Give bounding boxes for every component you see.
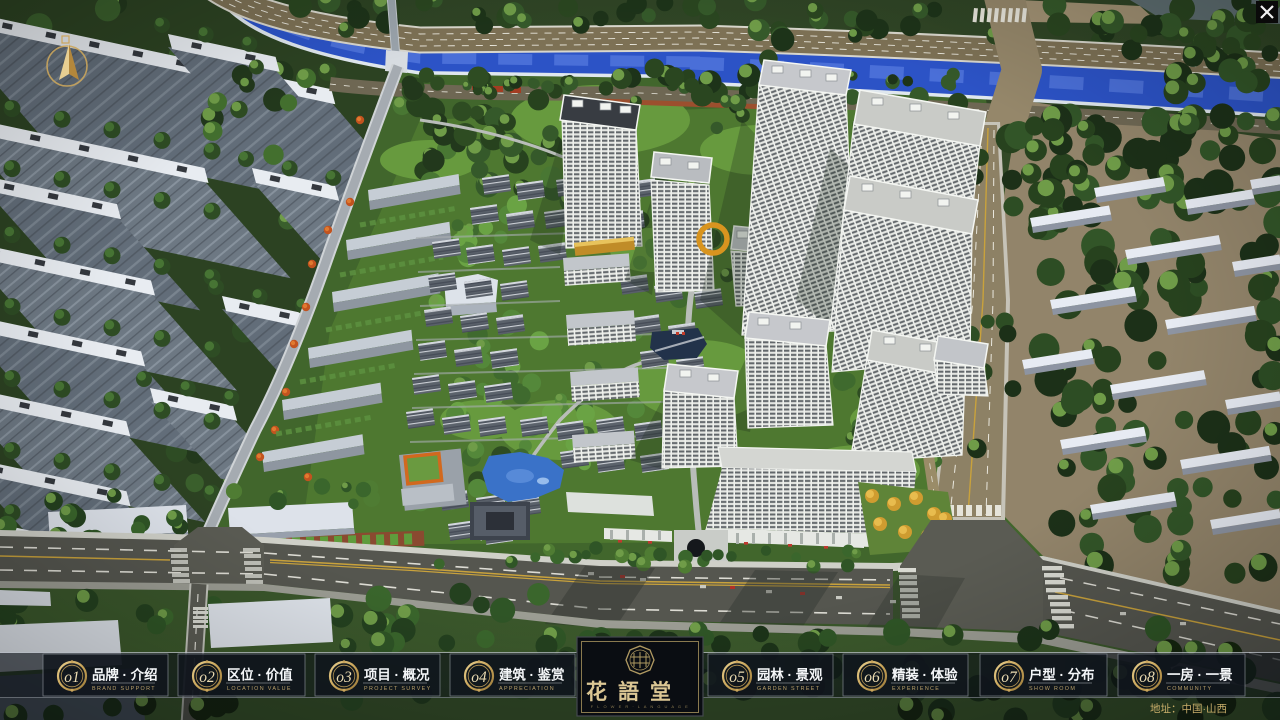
svg-text:项目 · 概况: 项目 · 概况 (364, 667, 430, 683)
svg-text:o1: o1 (64, 669, 80, 686)
svg-text:PROJECT SURVEY: PROJECT SURVEY (364, 686, 432, 692)
svg-text:o2: o2 (199, 669, 215, 686)
svg-text:F L O W E R · L A N G U A G E: F L O W E R · L A N G U A G E (591, 704, 690, 709)
svg-text:一房 · 一景: 一房 · 一景 (1167, 667, 1232, 683)
svg-text:o6: o6 (864, 669, 880, 686)
svg-text:SHOW ROOM: SHOW ROOM (1029, 686, 1076, 692)
svg-text:EXPERIENCE: EXPERIENCE (892, 686, 940, 692)
svg-text:品牌 · 介绍: 品牌 · 介绍 (92, 667, 157, 683)
svg-text:o8: o8 (1139, 669, 1155, 686)
svg-text:APPRECIATION: APPRECIATION (499, 686, 555, 692)
svg-text:BRAND SUPPORT: BRAND SUPPORT (92, 686, 156, 692)
svg-text:精装 · 体验: 精装 · 体验 (892, 667, 958, 683)
svg-text:区位 · 价值: 区位 · 价值 (227, 667, 293, 683)
svg-text:GARDEN STREET: GARDEN STREET (757, 686, 820, 692)
svg-text:园林 · 景观: 园林 · 景观 (757, 667, 823, 683)
svg-text:o4: o4 (471, 669, 487, 686)
svg-text:o3: o3 (336, 669, 352, 686)
svg-text:建筑 · 鉴赏: 建筑 · 鉴赏 (499, 667, 565, 683)
svg-text:o7: o7 (1001, 669, 1018, 686)
svg-text:COMMUNITY: COMMUNITY (1167, 686, 1212, 692)
svg-text:户型 · 分布: 户型 · 分布 (1029, 667, 1094, 683)
svg-text:地址：中国·山西: 地址：中国·山西 (1150, 702, 1227, 715)
svg-text:花語堂: 花語堂 (586, 680, 682, 704)
svg-text:o5: o5 (729, 669, 745, 686)
svg-text:LOCATION VALUE: LOCATION VALUE (227, 686, 292, 692)
